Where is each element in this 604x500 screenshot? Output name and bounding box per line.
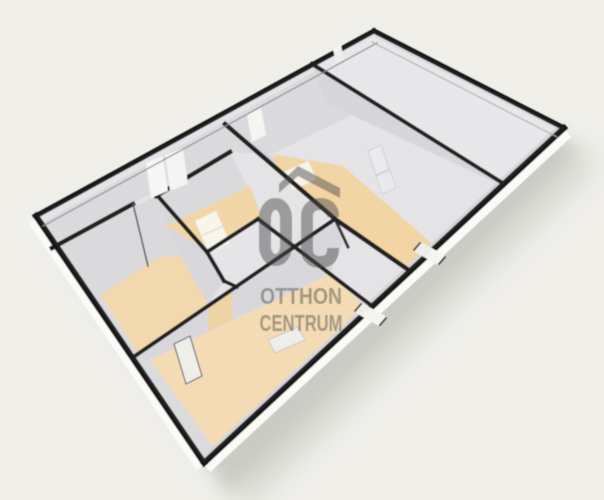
svg-text:OTTHON: OTTHON — [260, 283, 342, 309]
svg-text:CENTRUM: CENTRUM — [260, 310, 343, 336]
